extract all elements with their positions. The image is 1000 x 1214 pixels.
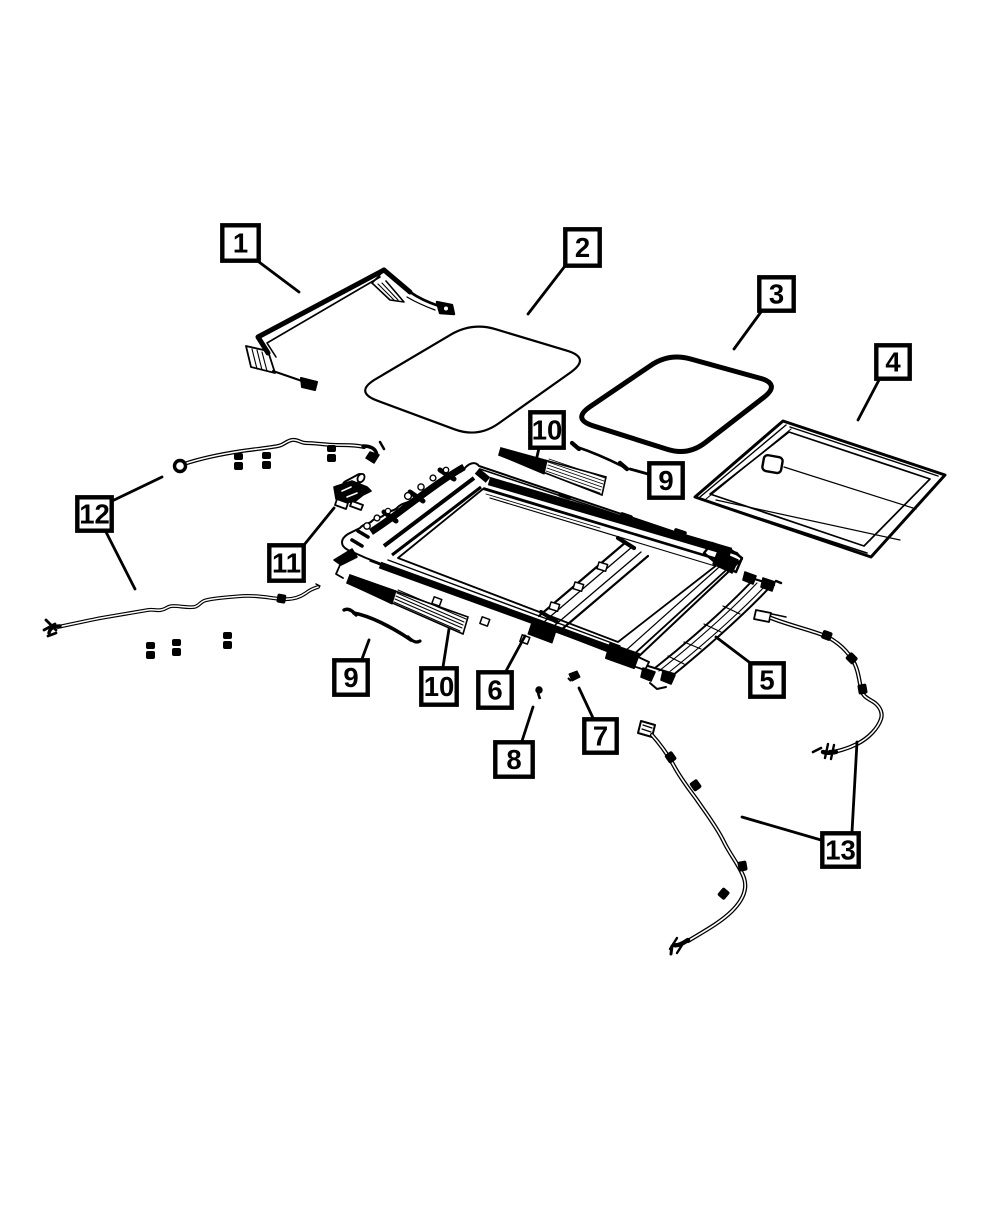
svg-text:10: 10 xyxy=(532,415,563,446)
svg-text:11: 11 xyxy=(272,548,301,579)
svg-text:5: 5 xyxy=(759,665,774,696)
svg-text:3: 3 xyxy=(769,279,784,310)
svg-text:9: 9 xyxy=(658,465,673,496)
svg-text:4: 4 xyxy=(885,347,901,378)
svg-text:8: 8 xyxy=(506,744,521,775)
svg-text:10: 10 xyxy=(424,671,455,702)
svg-text:12: 12 xyxy=(79,499,110,530)
svg-text:1: 1 xyxy=(233,228,248,259)
svg-text:2: 2 xyxy=(575,232,590,263)
svg-text:9: 9 xyxy=(343,662,358,693)
svg-text:13: 13 xyxy=(825,835,856,866)
svg-text:7: 7 xyxy=(593,721,608,752)
svg-text:6: 6 xyxy=(487,675,502,706)
